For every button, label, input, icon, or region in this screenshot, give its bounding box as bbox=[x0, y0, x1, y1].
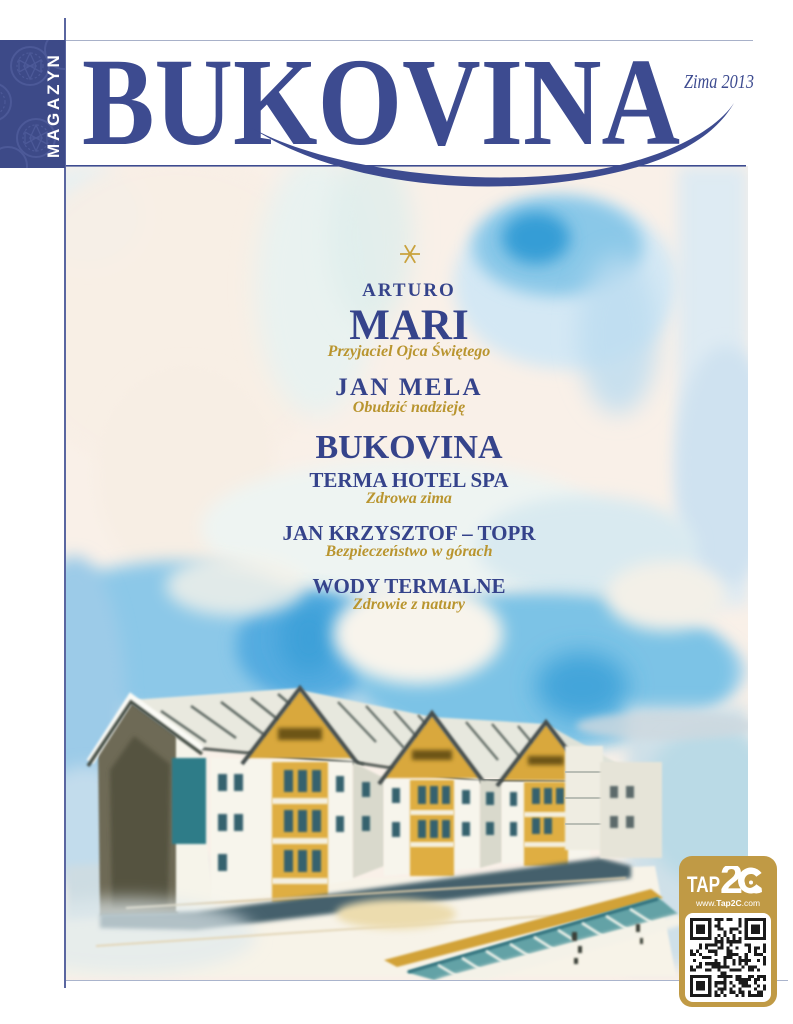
svg-text:TAP: TAP bbox=[687, 872, 720, 897]
svg-text:Zima 2013: Zima 2013 bbox=[684, 71, 754, 93]
svg-text:BUKOVINA: BUKOVINA bbox=[82, 34, 680, 172]
